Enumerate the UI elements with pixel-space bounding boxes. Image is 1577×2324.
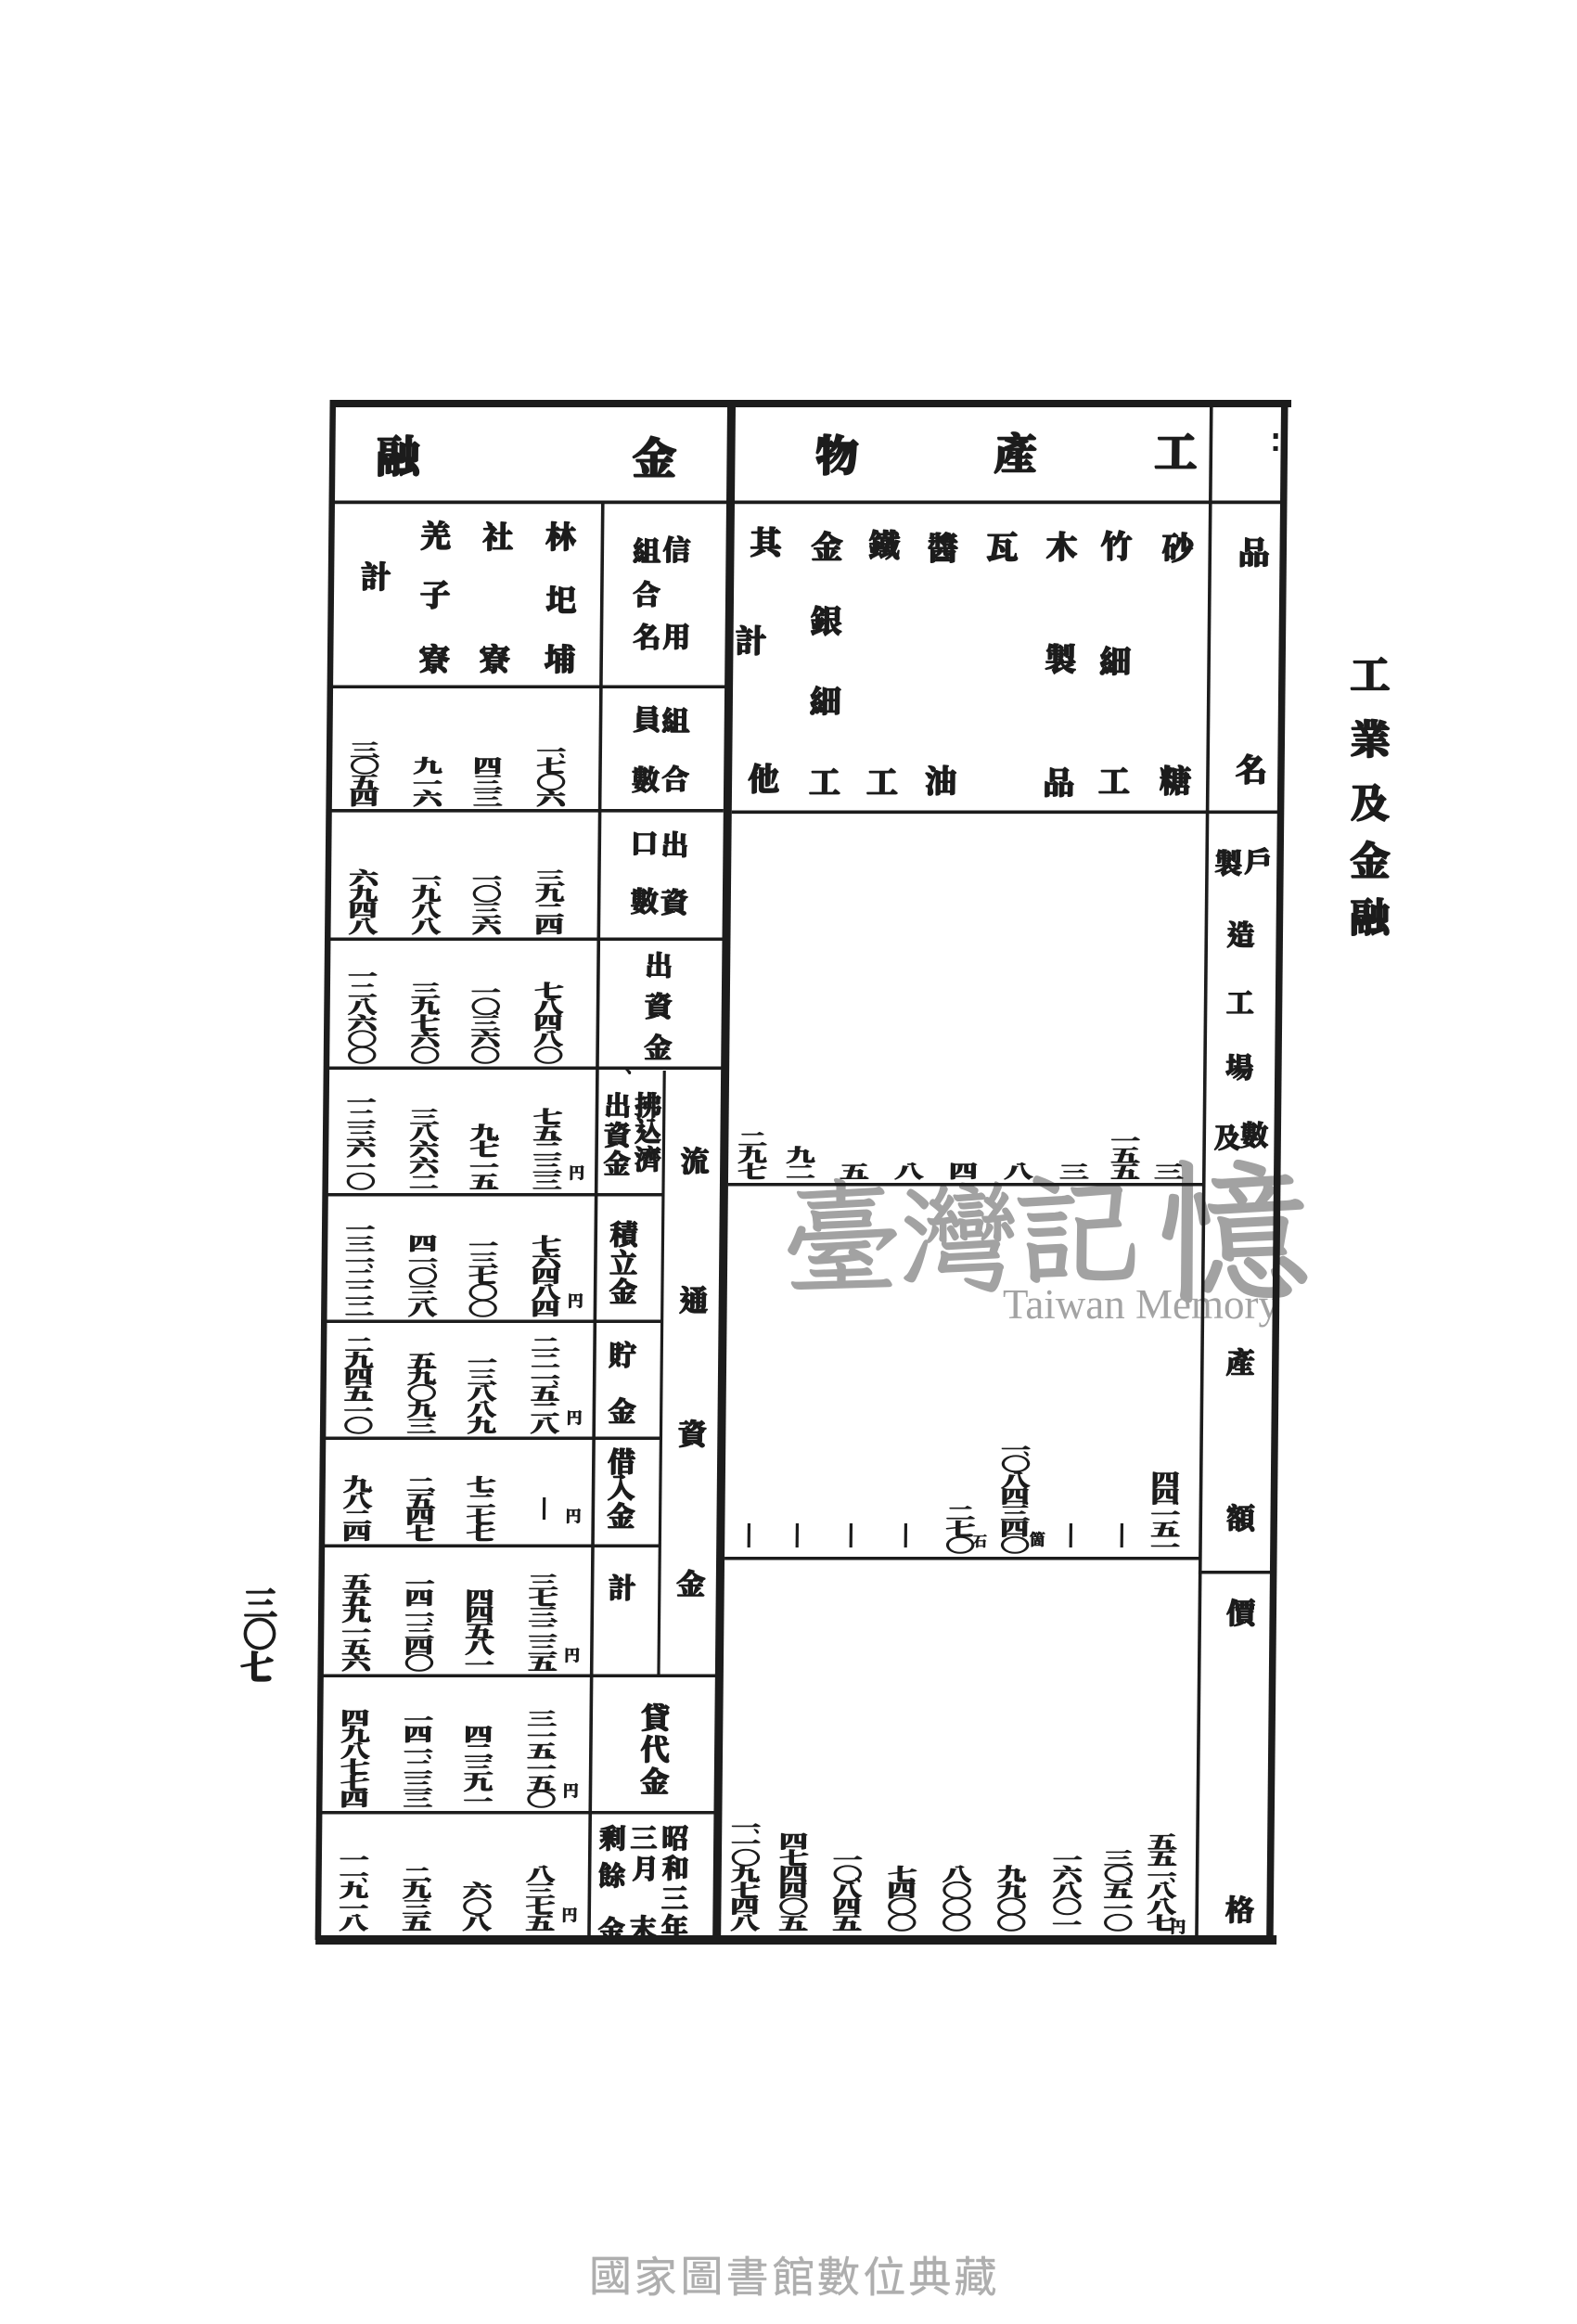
- svg-text:Taiwan Memory: Taiwan Memory: [1003, 1281, 1280, 1328]
